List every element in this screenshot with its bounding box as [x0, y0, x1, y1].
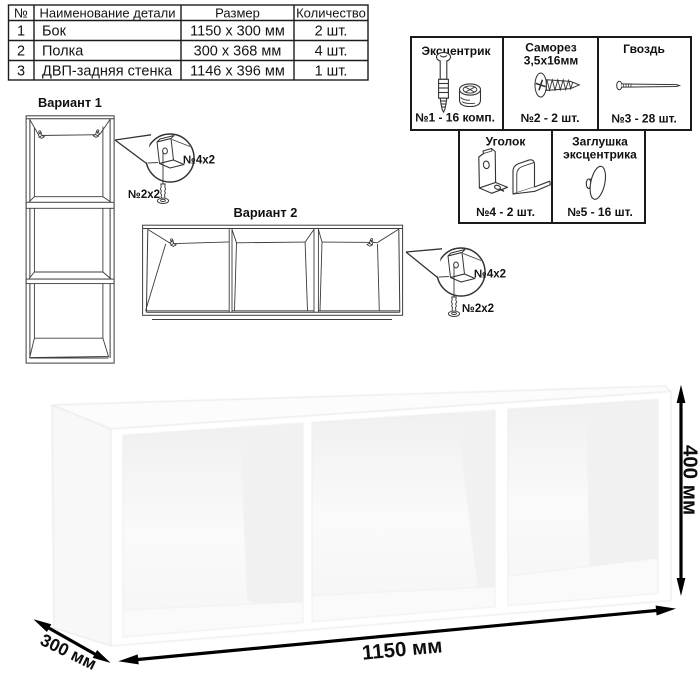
svg-text:3: 3	[17, 64, 25, 80]
svg-text:400 мм: 400 мм	[679, 445, 700, 515]
svg-text:Саморез: Саморез	[525, 41, 577, 55]
svg-text:Количество: Количество	[296, 6, 366, 21]
svg-text:№2х2: №2х2	[128, 189, 160, 201]
svg-text:Наименование детали: Наименование детали	[40, 6, 176, 21]
svg-text:1150 x 300 мм: 1150 x 300 мм	[190, 24, 285, 40]
svg-text:Эксцентрик: Эксцентрик	[422, 44, 492, 58]
svg-text:2: 2	[17, 44, 25, 60]
svg-text:№2х2: №2х2	[462, 303, 494, 315]
svg-text:Размер: Размер	[215, 6, 260, 21]
svg-text:№2 - 2 шт.: №2 - 2 шт.	[521, 111, 580, 125]
svg-text:300 x 368 мм: 300 x 368 мм	[194, 44, 282, 60]
svg-text:№3 - 28 шт.: №3 - 28 шт.	[611, 112, 677, 126]
svg-text:№4х2: №4х2	[183, 155, 215, 167]
svg-text:3,5х16мм: 3,5х16мм	[524, 54, 579, 68]
svg-text:2 шт.: 2 шт.	[315, 24, 348, 40]
svg-text:Заглушка: Заглушка	[572, 135, 628, 149]
svg-text:1 шт.: 1 шт.	[315, 64, 348, 80]
svg-text:1146 x 396 мм: 1146 x 396 мм	[190, 64, 285, 80]
svg-text:№5 - 16 шт.: №5 - 16 шт.	[567, 205, 633, 219]
svg-text:ДВП-задняя стенка: ДВП-задняя стенка	[42, 64, 173, 80]
svg-text:Вариант 2: Вариант 2	[234, 205, 298, 220]
svg-text:1: 1	[17, 24, 25, 40]
svg-text:Гвоздь: Гвоздь	[623, 42, 665, 56]
svg-text:Уголок: Уголок	[486, 135, 527, 149]
svg-text:Бок: Бок	[42, 24, 67, 40]
svg-text:4 шт.: 4 шт.	[315, 44, 348, 60]
svg-text:№1 - 16 комп.: №1 - 16 комп.	[415, 111, 495, 125]
svg-text:Вариант 1: Вариант 1	[38, 95, 102, 110]
svg-text:№: №	[14, 6, 28, 21]
svg-text:№4 - 2 шт.: №4 - 2 шт.	[476, 205, 535, 219]
svg-text:№4х2: №4х2	[474, 269, 506, 281]
svg-text:Полка: Полка	[42, 44, 84, 60]
svg-text:эксцентрика: эксцентрика	[563, 148, 637, 162]
